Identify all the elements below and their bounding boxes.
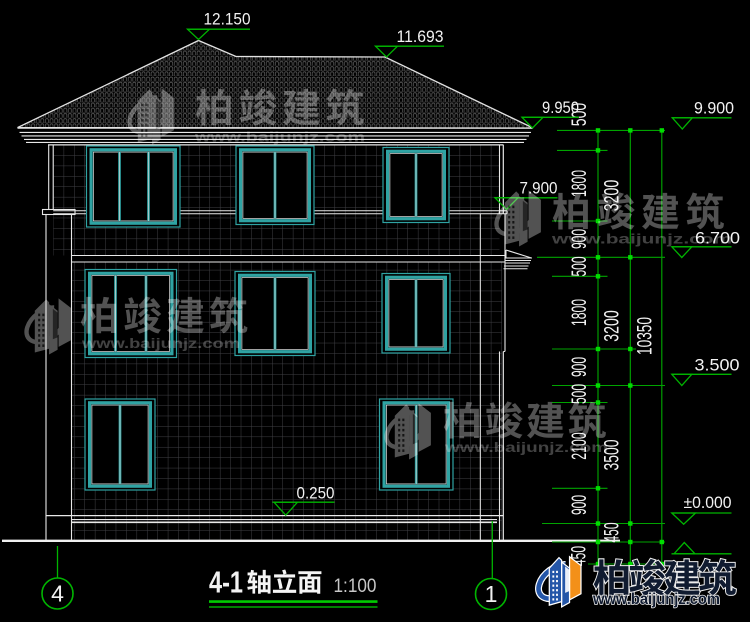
- svg-text:1800: 1800: [568, 170, 591, 197]
- svg-text:1: 1: [485, 581, 498, 607]
- svg-text:1:100: 1:100: [334, 575, 377, 597]
- svg-text:www.baijunjz.com: www.baijunjz.com: [444, 439, 608, 455]
- svg-text:www.baijunjz.com: www.baijunjz.com: [551, 231, 732, 247]
- svg-text:11.693: 11.693: [397, 28, 444, 46]
- svg-text:10350: 10350: [633, 317, 656, 355]
- svg-text:500: 500: [568, 257, 591, 277]
- svg-text:900: 900: [568, 495, 591, 515]
- svg-text:7.900: 7.900: [520, 180, 558, 198]
- svg-text:1800: 1800: [568, 299, 591, 326]
- svg-text:9.900: 9.900: [694, 100, 734, 118]
- svg-text:3.500: 3.500: [695, 357, 740, 375]
- svg-text:www.baijunjz.com: www.baijunjz.com: [194, 129, 365, 145]
- svg-text:4-1: 4-1: [209, 565, 243, 600]
- svg-text:4: 4: [51, 581, 64, 607]
- svg-text:0.250: 0.250: [297, 485, 335, 503]
- svg-text:450: 450: [601, 523, 624, 543]
- svg-text:12.150: 12.150: [204, 11, 251, 29]
- svg-text:9.950: 9.950: [542, 99, 579, 117]
- svg-text:3200: 3200: [601, 310, 624, 342]
- svg-text:500: 500: [568, 384, 591, 404]
- svg-text:900: 900: [568, 357, 591, 377]
- svg-text:www.baijunjz.com: www.baijunjz.com: [592, 591, 720, 608]
- svg-text:±0.000: ±0.000: [684, 494, 732, 512]
- svg-text:www.baijunjz.com: www.baijunjz.com: [81, 335, 240, 351]
